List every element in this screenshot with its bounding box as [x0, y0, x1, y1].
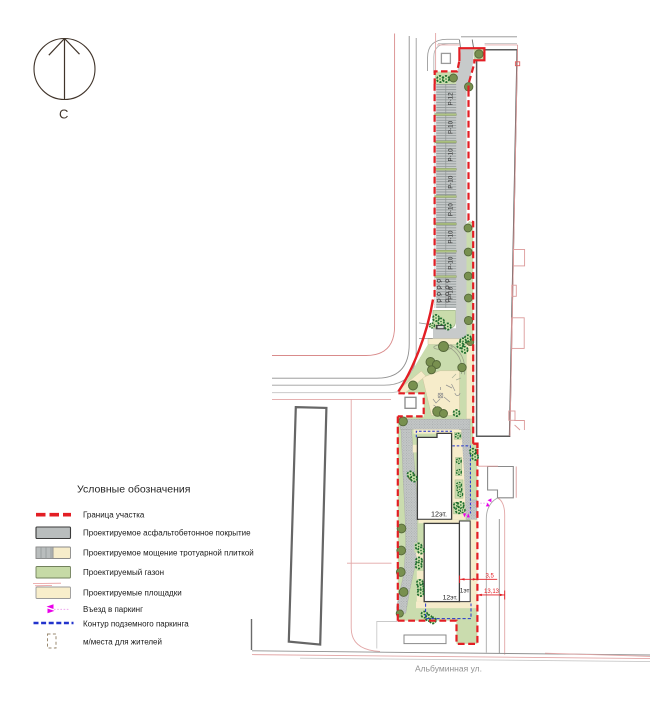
svg-text:Р-10: Р-10: [448, 148, 455, 162]
svg-text:Проектируемые площадки: Проектируемые площадки: [83, 589, 182, 598]
svg-text:1эт: 1эт: [460, 588, 470, 595]
svg-text:12эт.: 12эт.: [443, 595, 458, 602]
svg-text:Р-10: Р-10: [448, 256, 455, 270]
svg-text:Проектируемое мощение тротуарн: Проектируемое мощение тротуарной плиткой: [83, 549, 254, 558]
svg-text:13,13: 13,13: [484, 589, 500, 595]
svg-text:Граница участка: Граница участка: [83, 511, 145, 520]
svg-text:Р-10: Р-10: [448, 230, 455, 244]
svg-text:Проектируемое асфальтобетонное: Проектируемое асфальтобетонное покрытие: [83, 529, 251, 538]
svg-text:Альбуминная ул.: Альбуминная ул.: [415, 664, 482, 674]
svg-text:С: С: [59, 107, 68, 122]
svg-text:Р-10: Р-10: [448, 203, 455, 217]
svg-text:м/места для жителей: м/места для жителей: [83, 638, 162, 647]
svg-text:Проектируемый газон: Проектируемый газон: [83, 568, 164, 577]
svg-text:3,5: 3,5: [486, 574, 495, 580]
svg-text:Условные обозначения: Условные обозначения: [77, 484, 190, 496]
svg-text:Въезд в паркинг: Въезд в паркинг: [83, 605, 143, 614]
svg-text:Р-12: Р-12: [448, 92, 455, 106]
svg-text:12эт.: 12эт.: [431, 510, 447, 519]
svg-text:Р-10: Р-10: [448, 120, 455, 134]
svg-text:Р-10: Р-10: [448, 175, 455, 189]
svg-text:Контур подземного паркинга: Контур подземного паркинга: [83, 620, 189, 629]
